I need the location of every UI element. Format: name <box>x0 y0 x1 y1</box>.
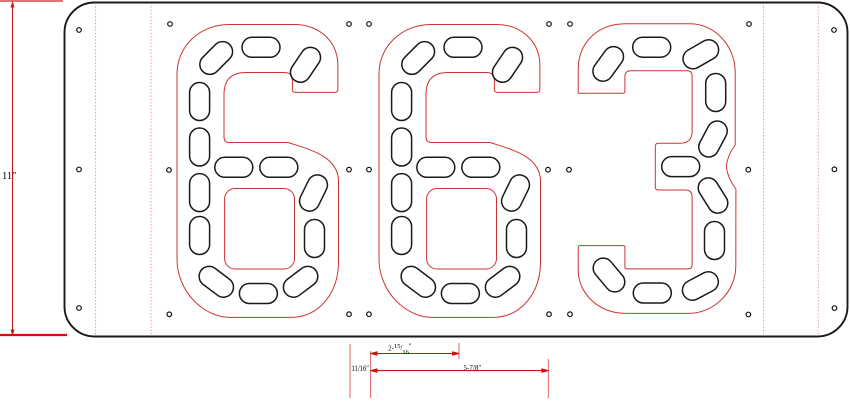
svg-text:11″: 11″ <box>2 171 16 182</box>
svg-text:5-7/8″: 5-7/8″ <box>464 363 482 372</box>
svg-text:11/16″: 11/16″ <box>352 363 370 373</box>
